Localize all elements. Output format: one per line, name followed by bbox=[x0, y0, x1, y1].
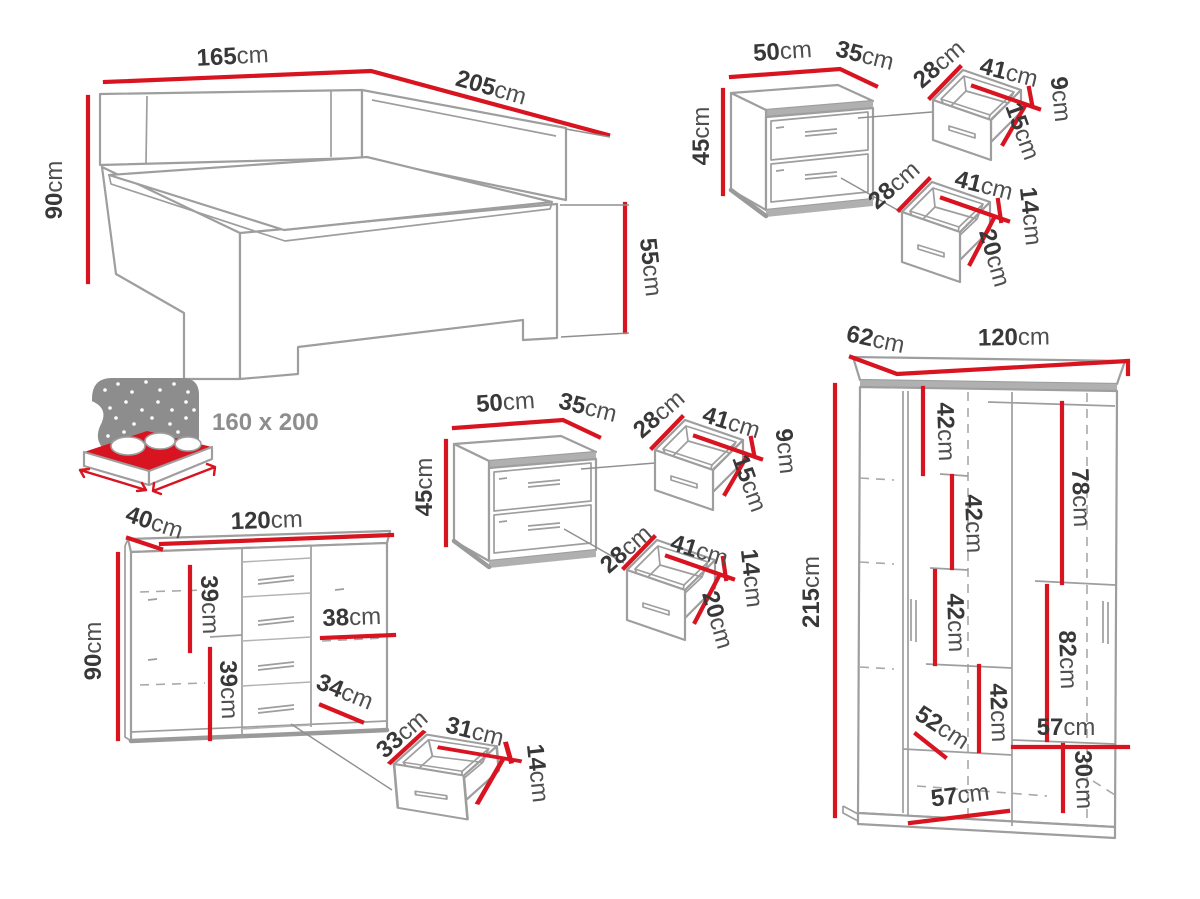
bed-width-dim: 165cm bbox=[196, 41, 269, 72]
furniture-dimension-diagram: 165cm 205cm 90cm 55cm 160 x 200 50cm 35c… bbox=[0, 0, 1200, 899]
dresser-height-dim: 90cm bbox=[80, 622, 107, 681]
wardrobe-hanging-bottom-dim: 82cm bbox=[1053, 630, 1082, 690]
nightstand-middle-width-dim: 50cm bbox=[475, 387, 535, 418]
diagram-canvas: 165cm 205cm 90cm 55cm 160 x 200 50cm 35c… bbox=[0, 0, 1200, 899]
wardrobe-shelf2-dim: 42cm bbox=[959, 494, 988, 554]
dresser-inner-width-dim: 38cm bbox=[322, 603, 382, 632]
bed-height-dim: 90cm bbox=[41, 161, 68, 220]
wardrobe-shelf3-dim: 42cm bbox=[941, 593, 970, 653]
ns-mid-small-drawer-back-height: 9cm bbox=[770, 427, 802, 475]
wardrobe-width-dim: 120cm bbox=[978, 323, 1051, 351]
dresser-width-dim: 120cm bbox=[230, 506, 303, 535]
nightstand-middle-height-dim: 45cm bbox=[411, 458, 438, 517]
nightstand-top-height-dim: 45cm bbox=[688, 107, 715, 166]
wardrobe-hanging-top-dim: 78cm bbox=[1066, 468, 1095, 528]
mattress-size-label: 160 x 200 bbox=[212, 409, 319, 436]
wardrobe-bottom-height-dim: 30cm bbox=[1069, 750, 1098, 810]
nightstand-top-width-dim: 50cm bbox=[752, 36, 812, 67]
dresser-front bbox=[131, 543, 387, 741]
wardrobe-shelf1-dim: 42cm bbox=[931, 402, 960, 462]
wardrobe-inner-width-right-dim: 57cm bbox=[1037, 714, 1096, 741]
wardrobe-height-dim: 215cm bbox=[798, 556, 825, 628]
bed-headboard bbox=[100, 90, 362, 165]
dresser-shelf-top-dim: 39cm bbox=[195, 575, 224, 635]
ns-top-small-drawer-back-height: 9cm bbox=[1045, 75, 1077, 123]
wardrobe-shelf4-dim: 42cm bbox=[984, 683, 1013, 743]
dresser-shelf-bottom-dim: 39cm bbox=[214, 660, 243, 720]
